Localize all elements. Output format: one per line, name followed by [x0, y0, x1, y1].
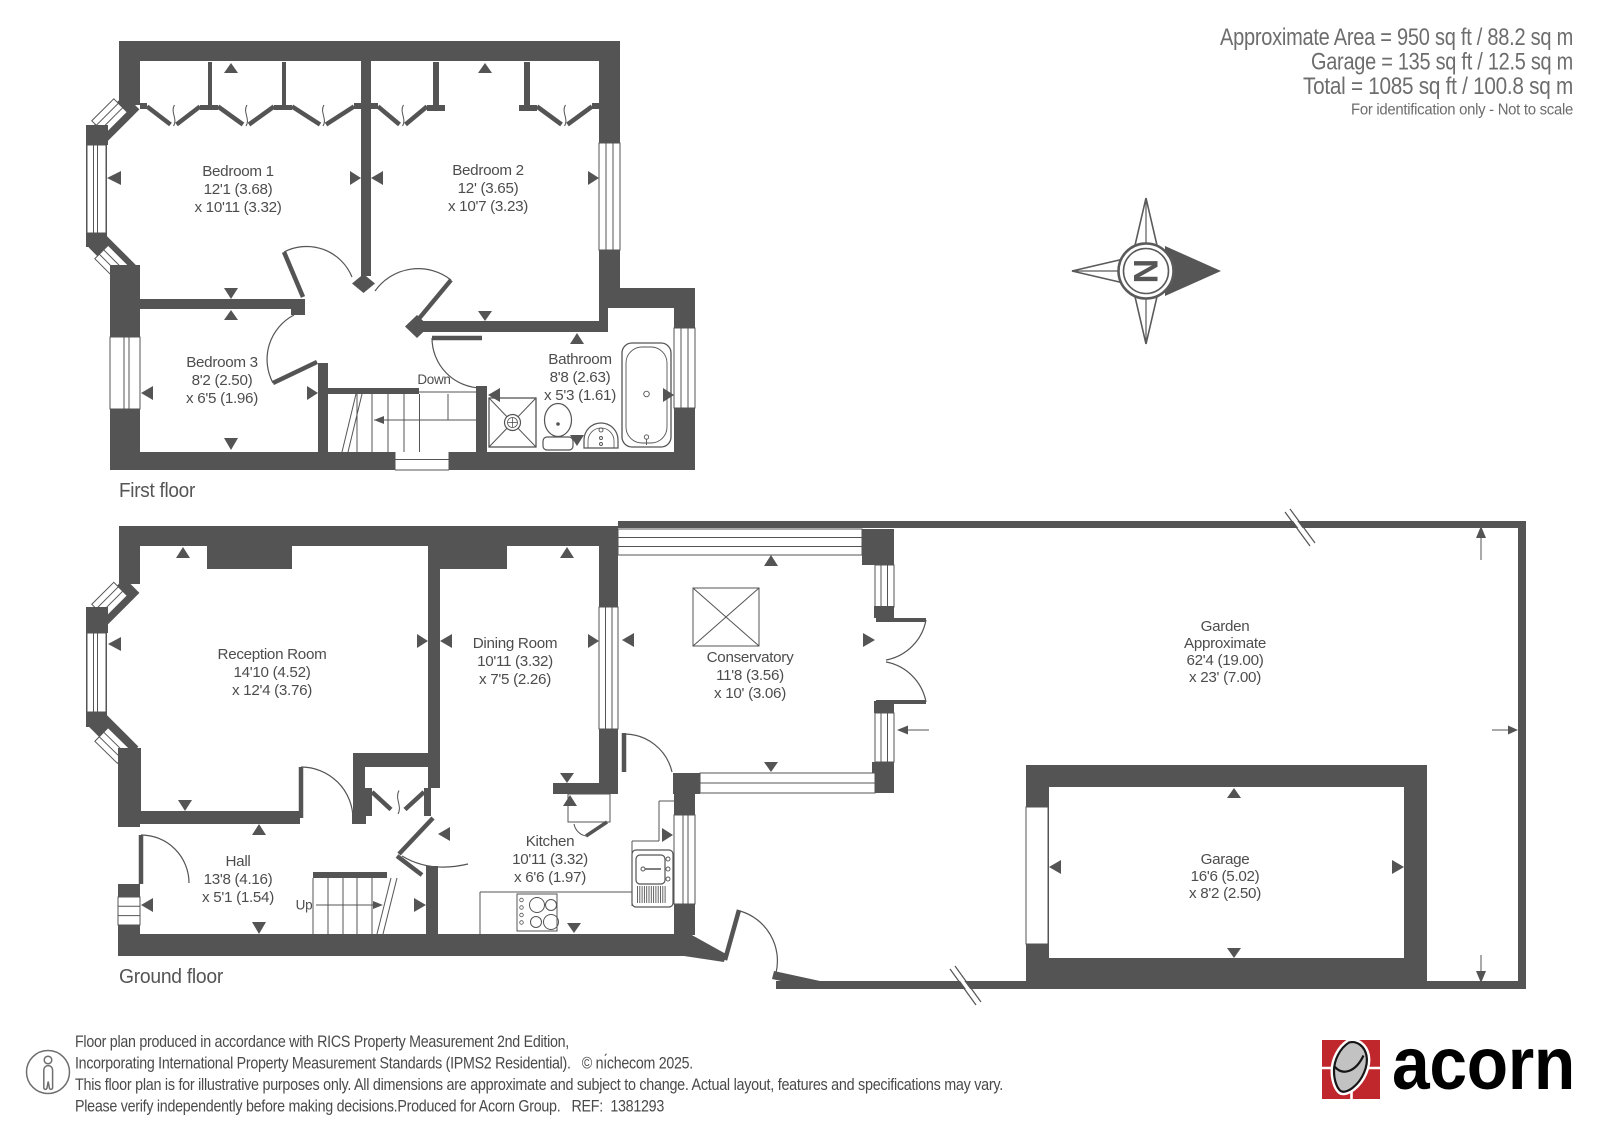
svg-text:x 5'3 (1.61): x 5'3 (1.61)	[544, 387, 616, 404]
svg-text:x 10'7 (3.23): x 10'7 (3.23)	[448, 198, 528, 215]
svg-text:Incorporating International Pr: Incorporating International Property Mea…	[75, 1053, 693, 1073]
svg-text:N: N	[1126, 259, 1164, 283]
svg-text:Garage: Garage	[1201, 851, 1250, 868]
svg-text:x 12'4 (3.76): x 12'4 (3.76)	[232, 682, 312, 699]
svg-text:Bathroom: Bathroom	[548, 351, 611, 368]
svg-text:Bedroom 1: Bedroom 1	[202, 163, 274, 180]
svg-text:62'4 (19.00): 62'4 (19.00)	[1187, 652, 1264, 669]
svg-text:10'11 (3.32): 10'11 (3.32)	[512, 851, 588, 868]
svg-text:x 6'6 (1.97): x 6'6 (1.97)	[514, 869, 586, 886]
svg-text:13'8 (4.16): 13'8 (4.16)	[204, 871, 273, 888]
svg-text:Down: Down	[417, 372, 450, 387]
svg-text:x 8'2 (2.50): x 8'2 (2.50)	[1189, 885, 1261, 902]
svg-text:Garage = 135 sq ft / 12.5 sq m: Garage = 135 sq ft / 12.5 sq m	[1311, 49, 1573, 76]
svg-text:16'6 (5.02): 16'6 (5.02)	[1191, 868, 1260, 885]
svg-text:This floor plan is for illustr: This floor plan is for illustrative purp…	[75, 1076, 1003, 1094]
svg-text:Approximate: Approximate	[1184, 635, 1266, 652]
svg-text:Kitchen: Kitchen	[526, 833, 575, 850]
svg-text:Up: Up	[296, 898, 313, 913]
svg-text:acorn: acorn	[1392, 1022, 1575, 1105]
svg-text:8'2 (2.50): 8'2 (2.50)	[192, 372, 253, 389]
svg-text:Ground floor: Ground floor	[119, 965, 223, 988]
svg-text:Floor plan produced in accorda: Floor plan produced in accordance with R…	[75, 1033, 569, 1051]
svg-text:Approximate Area = 950 sq ft /: Approximate Area = 950 sq ft / 88.2 sq m	[1220, 24, 1573, 51]
svg-text:x 7'5 (2.26): x 7'5 (2.26)	[479, 671, 551, 688]
svg-text:12'1 (3.68): 12'1 (3.68)	[204, 181, 273, 198]
svg-text:Bedroom 2: Bedroom 2	[452, 162, 524, 179]
svg-text:12' (3.65): 12' (3.65)	[458, 180, 519, 197]
svg-text:Garden: Garden	[1201, 618, 1250, 635]
svg-text:Reception Room: Reception Room	[218, 646, 327, 663]
svg-text:x 10' (3.06): x 10' (3.06)	[714, 685, 786, 702]
svg-text:x 23' (7.00): x 23' (7.00)	[1189, 669, 1261, 686]
svg-text:For identification only - Not: For identification only - Not to scale	[1351, 102, 1573, 119]
svg-text:Dining Room: Dining Room	[473, 635, 558, 652]
svg-text:10'11 (3.32): 10'11 (3.32)	[477, 653, 553, 670]
svg-text:Total = 1085 sq ft / 100.8 sq: Total = 1085 sq ft / 100.8 sq m	[1303, 73, 1573, 100]
svg-text:Conservatory: Conservatory	[707, 649, 794, 666]
svg-text:Hall: Hall	[226, 853, 251, 870]
svg-text:First floor: First floor	[119, 479, 195, 502]
svg-text:Bedroom 3: Bedroom 3	[186, 354, 258, 371]
svg-text:Please verify independently be: Please verify independently before makin…	[75, 1098, 664, 1116]
svg-text:x 6'5 (1.96): x 6'5 (1.96)	[186, 390, 258, 407]
svg-text:8'8 (2.63): 8'8 (2.63)	[550, 369, 611, 386]
svg-text:x 10'11 (3.32): x 10'11 (3.32)	[194, 199, 281, 216]
svg-text:x 5'1 (1.54): x 5'1 (1.54)	[202, 889, 274, 906]
svg-text:14'10 (4.52): 14'10 (4.52)	[234, 664, 311, 681]
svg-text:11'8 (3.56): 11'8 (3.56)	[716, 667, 784, 684]
